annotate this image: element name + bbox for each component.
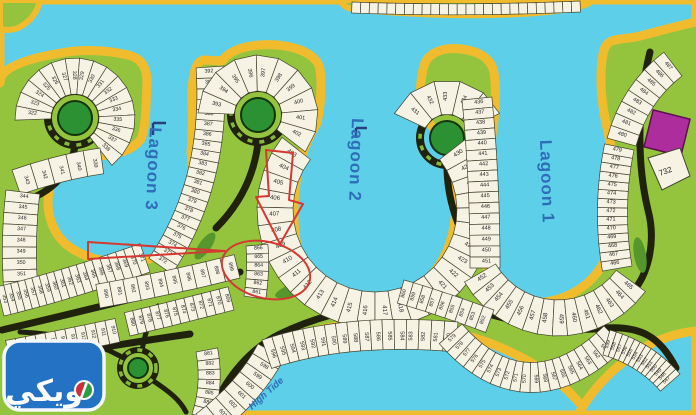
- plot-number: 882: [205, 360, 214, 367]
- plot-cell: [422, 4, 431, 15]
- plot-number: 447: [481, 215, 490, 221]
- plot-number: 469: [607, 234, 617, 241]
- park-circle-1: [58, 101, 92, 135]
- plot-cell: [440, 4, 449, 15]
- plot-number: 590: [330, 335, 337, 345]
- lagoon-map-image: 3223233243253263273283293303313323333343…: [0, 0, 696, 415]
- roundabout-center: [128, 358, 148, 378]
- plot-number: 863: [254, 271, 263, 278]
- plot-cell: [360, 2, 369, 13]
- plot-number: 862: [253, 280, 262, 287]
- plot-cell: [519, 3, 528, 14]
- plot-number: 451: [482, 258, 491, 264]
- purple-landmark: [644, 110, 690, 156]
- plot-number: 350: [17, 260, 26, 266]
- plot-number: 344: [19, 193, 28, 200]
- plot-number: 440: [477, 140, 487, 147]
- watermark-text: ويكي: [5, 374, 83, 409]
- plot-number: 346: [18, 215, 27, 222]
- plot-number: 444: [480, 182, 489, 188]
- plot-number: 864: [254, 263, 263, 269]
- plot-number: 450: [482, 247, 491, 253]
- plot-number: 349: [17, 249, 26, 255]
- plot-number: 347: [17, 226, 26, 232]
- plot-number: 459: [558, 314, 564, 325]
- plot-number: 436: [474, 99, 484, 106]
- plot-number: 417: [381, 305, 388, 316]
- plot-number: 883: [206, 370, 215, 376]
- plot-cell: [466, 4, 475, 15]
- plot-group-circled-plots: 866865864863862861: [244, 244, 269, 299]
- plot-cell: [492, 3, 501, 14]
- map-svg: 3223233243253263273283293303313323333343…: [0, 0, 696, 415]
- plot-number: 441: [478, 151, 488, 158]
- plot-number: 587: [363, 332, 370, 342]
- plot-cell: [396, 3, 405, 14]
- plot-number: 437: [475, 109, 485, 116]
- plot-number: 445: [480, 193, 489, 199]
- plot-cell: [387, 3, 396, 14]
- plot-cell: [378, 3, 387, 14]
- plot-number: 467: [609, 251, 619, 258]
- plot-cell: [571, 1, 580, 12]
- plot-cell: [527, 3, 536, 14]
- plot-cell: [475, 4, 484, 15]
- plot-number: 406: [270, 195, 281, 202]
- plot-number: 583: [408, 331, 414, 340]
- plot-cell: [431, 4, 440, 15]
- plot-number: 348: [17, 237, 26, 243]
- plot-cell: [448, 4, 457, 15]
- plot-number: 884: [206, 380, 215, 387]
- plot-number: 474: [607, 190, 617, 197]
- plot-number: 470: [607, 225, 616, 231]
- plot-number: 589: [340, 334, 347, 344]
- plot-number: 401: [296, 115, 306, 122]
- plot-number: 473: [606, 199, 615, 205]
- watermark-logo: ويكي: [4, 341, 104, 410]
- plot-number: 439: [477, 130, 487, 137]
- plot-number: 438: [476, 119, 486, 126]
- plot-number: 586: [374, 332, 380, 341]
- plot-number: 585: [386, 331, 392, 340]
- plot-number: 448: [481, 225, 490, 231]
- plot-number: 345: [18, 204, 27, 211]
- plot-number: 865: [254, 254, 263, 260]
- plot-cell: [352, 2, 361, 13]
- plot-number: 322: [28, 110, 37, 117]
- plot-number: 581: [433, 332, 440, 342]
- plot-number: 569: [533, 374, 539, 383]
- plot-number: 468: [608, 243, 618, 250]
- plot-number: 328: [71, 71, 77, 80]
- plot-number: 433: [443, 92, 449, 101]
- plot-number: 570: [522, 374, 529, 383]
- plot-number: 386: [202, 131, 212, 138]
- plot-number: 407: [269, 211, 280, 218]
- plot-cell: [536, 2, 545, 13]
- lagoon-2-label: Lagoon 2: [345, 118, 367, 202]
- plot-number: 442: [479, 161, 489, 168]
- plot-number: 584: [398, 331, 404, 340]
- plot-number: 472: [606, 208, 615, 214]
- plot-cell: [413, 4, 422, 15]
- lagoon-1-label: Lagoon 1: [536, 139, 558, 223]
- plot-number: 476: [608, 173, 618, 180]
- plot-number: 866: [254, 245, 263, 252]
- plot-cell: [563, 1, 572, 12]
- plot-number: 568: [541, 373, 548, 383]
- plot-cell: [510, 3, 519, 14]
- plot-number: 443: [479, 172, 488, 178]
- plot-cell: [554, 2, 563, 13]
- plot-number: 416: [363, 304, 370, 315]
- plot-number: 335: [113, 117, 122, 124]
- plot-cell: [501, 3, 510, 14]
- park-circle-2: [241, 98, 275, 132]
- plot-number: 446: [481, 204, 490, 210]
- plot-number: 351: [17, 271, 26, 277]
- plot-cell: [457, 4, 466, 15]
- plot-number: 449: [482, 236, 491, 242]
- plot-number: 885: [205, 389, 215, 396]
- plot-number: 387: [204, 121, 213, 128]
- plot-cell: [404, 3, 413, 14]
- plot-number: 582: [421, 332, 427, 341]
- plot-cell: [369, 3, 378, 14]
- plot-number: 392: [204, 68, 213, 74]
- plot-number: 471: [606, 217, 615, 223]
- plot-cell: [484, 4, 493, 15]
- plot-number: 475: [607, 182, 617, 189]
- plot-cell: [545, 2, 554, 13]
- plot-number: 588: [352, 333, 359, 343]
